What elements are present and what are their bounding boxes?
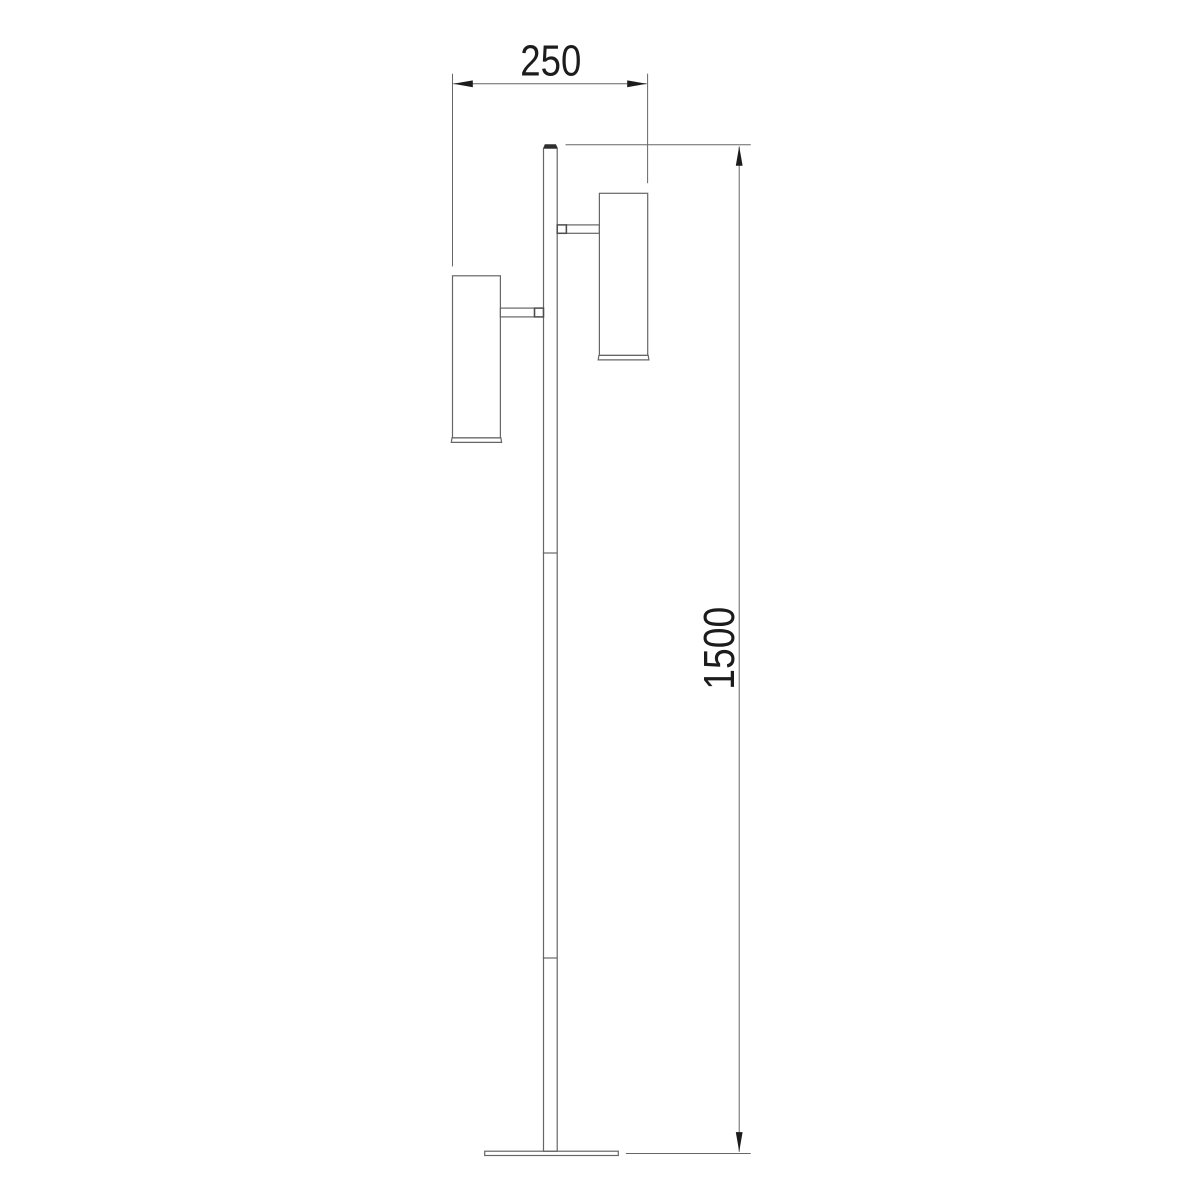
svg-text:1500: 1500	[695, 607, 744, 690]
svg-text:250: 250	[520, 36, 581, 85]
